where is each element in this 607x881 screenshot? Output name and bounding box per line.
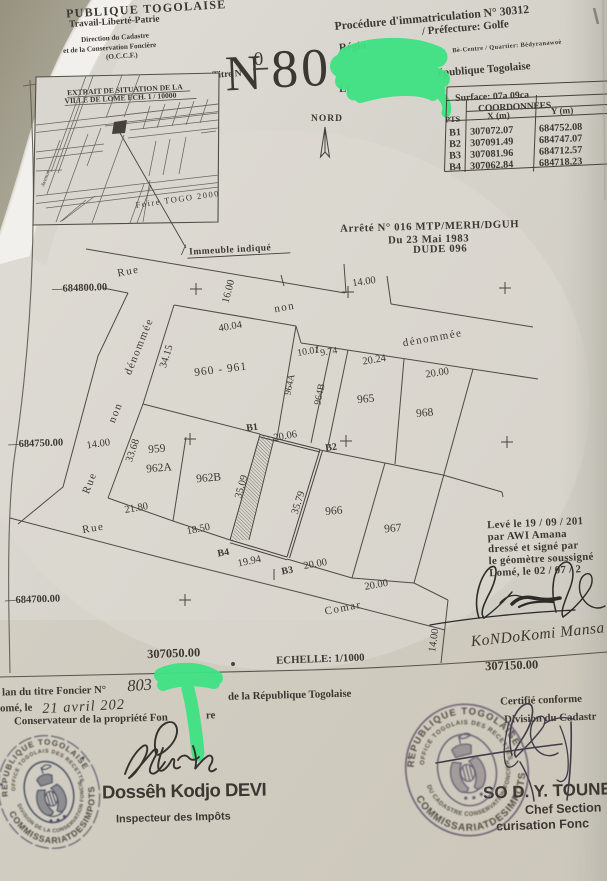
svg-text:959: 959: [148, 443, 166, 456]
svg-text:—684800.00: —684800.00: [51, 282, 107, 295]
svg-text:965: 965: [357, 393, 375, 406]
svg-text:B4: B4: [217, 547, 230, 560]
svg-text:B3: B3: [281, 565, 294, 578]
svg-text:DUDE 096: DUDE 096: [413, 242, 468, 255]
svg-text:803: 803: [127, 675, 153, 696]
svg-text:—684750.00: —684750.00: [7, 437, 63, 450]
svg-text:B2: B2: [325, 442, 338, 454]
svg-text:PTS: PTS: [445, 115, 461, 125]
svg-text:307050.00: 307050.00: [147, 645, 201, 661]
svg-text:962A: 962A: [146, 461, 173, 475]
svg-text:B3: B3: [449, 150, 461, 162]
svg-text:968: 968: [416, 407, 434, 420]
svg-text:Y (m): Y (m): [551, 105, 574, 116]
svg-text:967: 967: [384, 522, 402, 535]
svg-text:0: 0: [253, 49, 263, 70]
svg-text:B1: B1: [449, 127, 461, 139]
svg-text:re: re: [206, 709, 216, 721]
svg-text:NORD: NORD: [311, 114, 343, 124]
svg-text:B1: B1: [246, 422, 259, 434]
svg-text:966: 966: [325, 505, 343, 518]
svg-text:80: 80: [270, 37, 333, 100]
svg-text:—684700.00: —684700.00: [4, 593, 60, 606]
svg-text:684718.23: 684718.23: [539, 156, 583, 169]
svg-text:B4: B4: [449, 162, 461, 174]
svg-text:Dossêh Kodjo DEVI: Dossêh Kodjo DEVI: [102, 779, 267, 803]
svg-text:B2: B2: [449, 139, 461, 151]
svg-text:962B: 962B: [196, 471, 222, 485]
svg-text:X (m): X (m): [487, 110, 510, 121]
svg-text:omé, le: omé, le: [0, 702, 33, 715]
svg-text:Chef Section: Chef Section: [525, 800, 602, 817]
svg-text:307062.84: 307062.84: [470, 159, 514, 172]
